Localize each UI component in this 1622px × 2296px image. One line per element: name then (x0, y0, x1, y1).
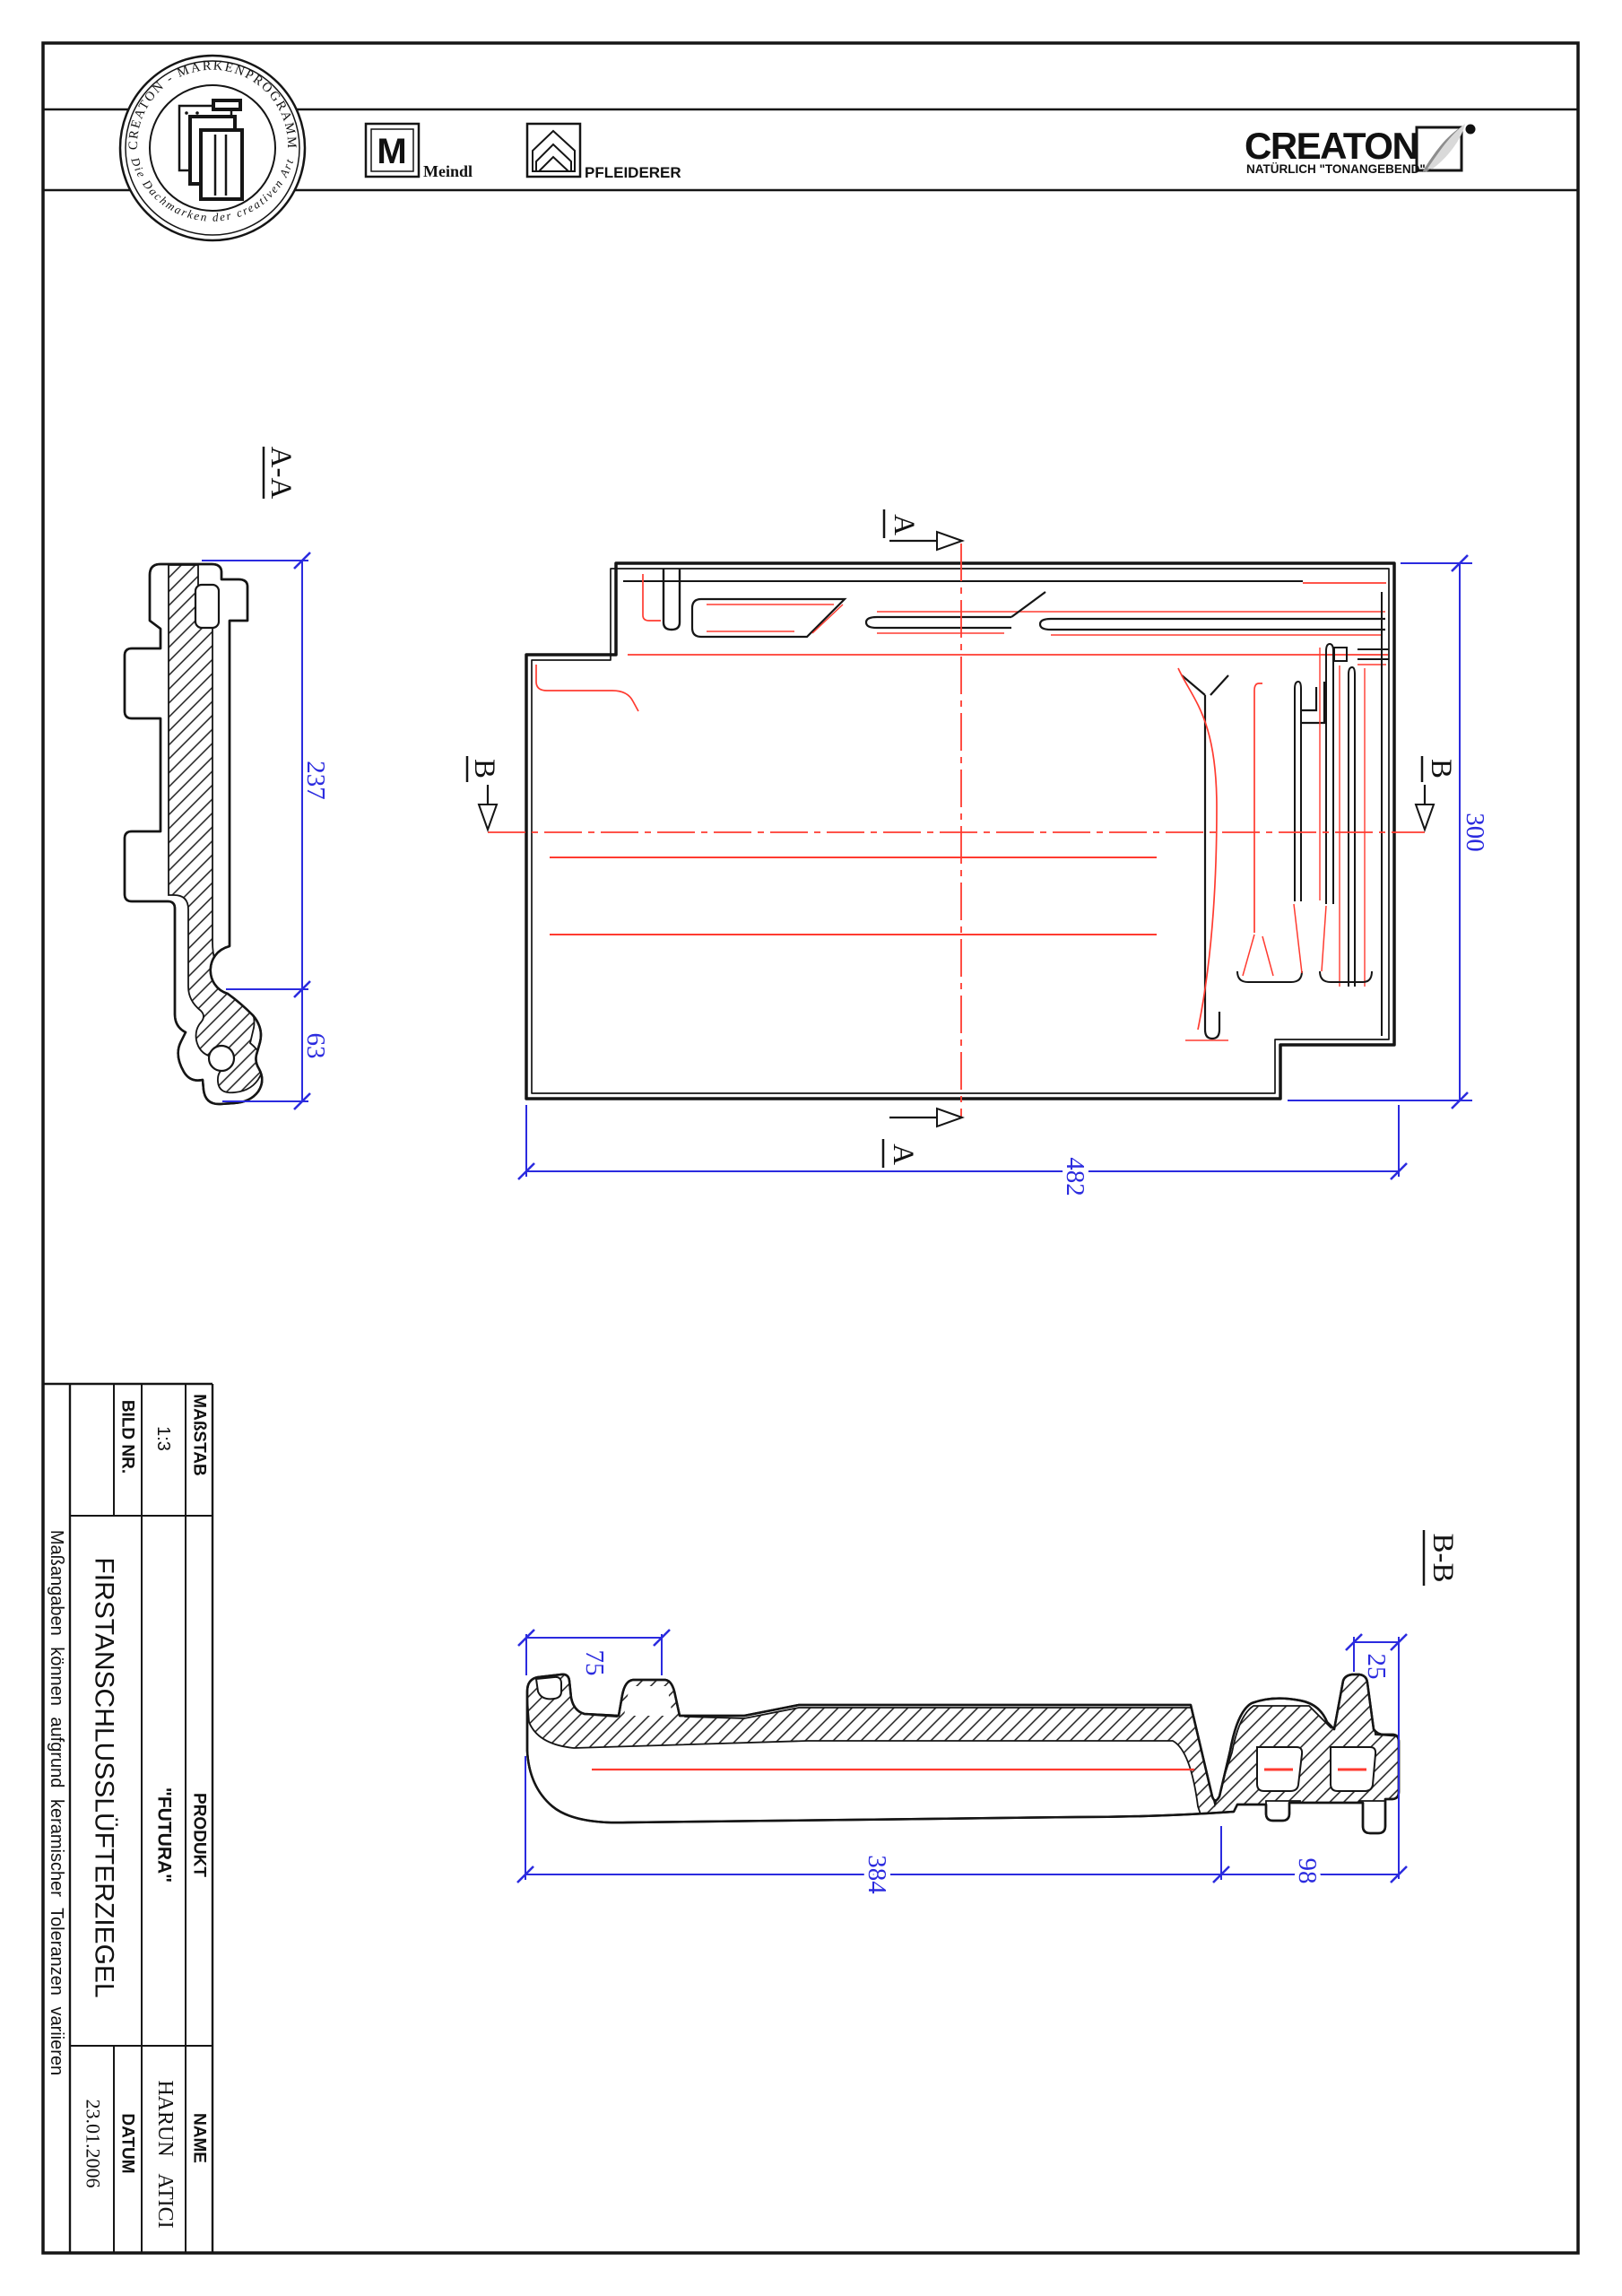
arrow-a-top-icon (937, 532, 962, 550)
produkt-value: "FUTURA" (154, 1787, 175, 1883)
arrow-b-left-icon (479, 804, 497, 830)
pfleiderer-logo: PFLEIDERER (527, 124, 681, 181)
dim-98: 98 (1293, 1858, 1322, 1884)
meindl-logo: M Meindl (366, 124, 473, 180)
pfleiderer-label: PFLEIDERER (585, 164, 681, 181)
page-frame (43, 43, 1578, 2253)
name-label: NAME (190, 2113, 209, 2163)
creaton-wordmark: CREATON (1245, 125, 1418, 167)
marker-b-left-label: B (468, 759, 500, 778)
section-marker-b-left: B (467, 756, 500, 830)
produkt-label: PRODUKT (190, 1793, 209, 1877)
name-value: HARUN ATICI (153, 2080, 177, 2228)
drawing-canvas: CREATON - MARKENPROGRAMM Die Dachmarken … (0, 0, 1622, 2296)
arrow-a-bottom-icon (937, 1109, 962, 1126)
dim-75: 75 (580, 1650, 609, 1676)
marker-b-right-label: B (1425, 759, 1457, 778)
title-block: MAßSTAB 1:3 BILD NR. PRODUKT "FUTURA" FI… (43, 1384, 213, 2253)
dim-384: 384 (863, 1855, 891, 1894)
section-marker-a-top: A (884, 509, 962, 550)
plan-outline (526, 563, 1394, 1099)
plan-view: A A B B 300 (467, 509, 1489, 1196)
masstab-value: 1:3 (153, 1426, 173, 1451)
plan-top-interlock (536, 569, 1388, 711)
dim-237: 237 (301, 761, 330, 800)
creaton-dot-icon (1466, 125, 1476, 135)
section-marker-b-right: B (1416, 756, 1457, 830)
product-name: FIRSTANSCHLUSSLÜFTERZIEGEL (90, 1557, 119, 1997)
section-bb-label: B-B (1427, 1533, 1459, 1582)
meindl-label: Meindl (423, 162, 473, 180)
section-aa-view: A-A 237 63 (125, 447, 330, 1109)
plan-side-interlock (1178, 592, 1389, 1040)
dim-300: 300 (1461, 813, 1489, 852)
arrow-b-right-icon (1416, 804, 1434, 830)
dim-25: 25 (1362, 1654, 1391, 1680)
tolerance-note: Maßangaben können aufgrund keramischer T… (47, 1530, 66, 2075)
section-bb-view: B-B 75 25 (517, 1530, 1459, 1894)
pfleiderer-chevron-icon (533, 131, 575, 171)
creaton-logo: CREATON NATÜRLICH "TONANGEBEND" (1245, 124, 1476, 176)
drawing-sheet: CREATON - MARKENPROGRAMM Die Dachmarken … (0, 0, 1622, 2296)
dim-482: 482 (1061, 1157, 1089, 1196)
meindl-monogram-icon: M (377, 132, 406, 171)
bild-nr-label: BILD NR. (118, 1400, 137, 1474)
marker-a-top-label: A (888, 514, 920, 535)
section-aa-label: A-A (265, 447, 297, 500)
datum-value: 23.01.2006 (82, 2100, 105, 2188)
roof-tiles-icon (179, 100, 242, 199)
section-marker-a-bottom: A (883, 1109, 962, 1168)
creaton-tagline: NATÜRLICH "TONANGEBEND" (1246, 162, 1426, 176)
marker-a-bottom-label: A (887, 1144, 919, 1165)
datum-label: DATUM (118, 2113, 137, 2173)
dim-63: 63 (301, 1033, 330, 1059)
header-band: CREATON - MARKENPROGRAMM Die Dachmarken … (43, 56, 1578, 240)
brand-badge: CREATON - MARKENPROGRAMM Die Dachmarken … (120, 56, 305, 240)
masstab-label: MAßSTAB (190, 1394, 209, 1475)
